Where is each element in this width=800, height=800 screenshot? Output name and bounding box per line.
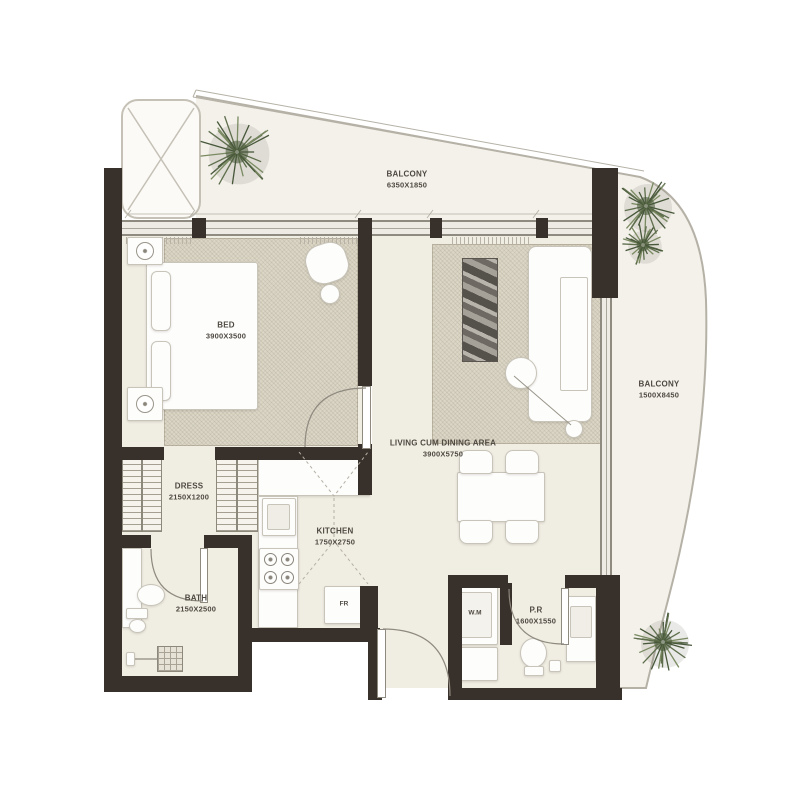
toilet-cistern	[126, 608, 148, 619]
side-table	[320, 284, 340, 304]
entry-door-leaf	[377, 629, 386, 698]
wall-west	[104, 168, 122, 688]
room-dims: 1600X1550	[516, 616, 556, 626]
side-table	[565, 420, 583, 438]
bidet-sprayer	[549, 660, 561, 672]
wall-dress-bath-a	[104, 535, 151, 548]
appliance-name: W.M	[468, 610, 481, 617]
room-name: DRESS	[169, 482, 209, 493]
room-dims: 3900X5750	[390, 449, 496, 459]
pr-door-leaf	[561, 588, 569, 645]
window-pier	[430, 218, 442, 238]
kitchen-sink-basin	[267, 504, 290, 530]
wall-pr-north-b	[565, 575, 620, 588]
room-dims: 1500X8450	[639, 390, 680, 400]
window-sill-hatch	[452, 237, 532, 244]
room-name: BATH	[176, 594, 216, 605]
wall-bath-east	[238, 548, 252, 688]
dining-chair	[505, 450, 539, 474]
stove-burner	[281, 571, 294, 584]
kitchen-counter-top	[258, 458, 370, 496]
room-dims: 3900X3500	[206, 331, 246, 341]
room-name: BALCONY	[387, 170, 428, 181]
coffee-table	[505, 357, 537, 389]
wardrobe-divider	[141, 450, 143, 532]
wash-basin	[137, 584, 165, 606]
room-dims: 2150X2500	[176, 604, 216, 614]
wall-pr-north-a	[448, 575, 508, 588]
shower-tray	[157, 646, 183, 672]
wall-pr-east-pier	[596, 584, 620, 690]
dining-chair	[459, 520, 493, 544]
toilet-bowl	[520, 638, 547, 668]
table-lamp	[136, 242, 154, 260]
dining-chair	[505, 520, 539, 544]
room-name: KITCHEN	[315, 527, 355, 538]
kitchen-label: KITCHEN 1750X2750	[315, 527, 355, 548]
balcony-sliding-door	[600, 296, 612, 586]
wall-kitchen-east-pier	[360, 586, 378, 642]
pr-label: P.R 1600X1550	[516, 606, 556, 627]
sofa-cushion	[560, 277, 588, 391]
dining-table	[457, 472, 545, 522]
dress-label: DRESS 2150X1200	[169, 482, 209, 503]
bath-label: BATH 2150X2500	[176, 594, 216, 615]
stove-burner	[264, 553, 277, 566]
bedroom-door-leaf	[362, 386, 371, 449]
toilet-cistern	[524, 666, 544, 676]
living-label: LIVING CUM DINING AREA 3900X5750	[390, 439, 496, 460]
table-lamp	[136, 395, 154, 413]
room-name: P.R	[516, 606, 556, 617]
room-dims: 6350X1850	[387, 180, 428, 190]
pr-basin	[570, 606, 592, 638]
wall-divider-stub	[358, 444, 372, 495]
wall-northeast-pier	[592, 168, 618, 298]
stove-burner	[264, 571, 277, 584]
shower-head	[126, 652, 135, 666]
wall-bedroom-south-b	[215, 447, 358, 460]
stove-burner	[281, 553, 294, 566]
room-name: LIVING CUM DINING AREA	[390, 439, 496, 450]
wall-dress-bath-b	[204, 535, 252, 548]
wall-pr-west	[448, 575, 462, 700]
room-name: BALCONY	[639, 380, 680, 391]
wall-bedroom-south-a	[122, 447, 164, 460]
window-pier	[358, 218, 372, 238]
toilet-bowl	[129, 619, 146, 633]
balcony-top-label: BALCONY 6350X1850	[387, 170, 428, 191]
wall-wm-divider	[500, 583, 512, 645]
window-pier	[536, 218, 548, 238]
room-name: BED	[206, 321, 246, 332]
washing-machine-label: W.M	[468, 610, 481, 619]
window-pier	[192, 218, 206, 238]
wall-bedroom-living-divider	[358, 226, 372, 386]
balcony-right-label: BALCONY 1500X8450	[639, 380, 680, 401]
appliance-name: FR	[340, 601, 349, 608]
room-dims: 2150X1200	[169, 492, 209, 502]
bedroom-label: BED 3900X3500	[206, 321, 246, 342]
room-dims: 1750X2750	[315, 537, 355, 547]
wall-bath-south	[104, 676, 252, 692]
pillow	[151, 271, 171, 331]
floor-plan: BALCONY 6350X1850 BED 3900X3500 DRESS 21…	[0, 0, 800, 800]
fridge-label: FR	[340, 601, 349, 610]
tv-console	[462, 258, 498, 362]
wardrobe-divider	[236, 450, 238, 532]
